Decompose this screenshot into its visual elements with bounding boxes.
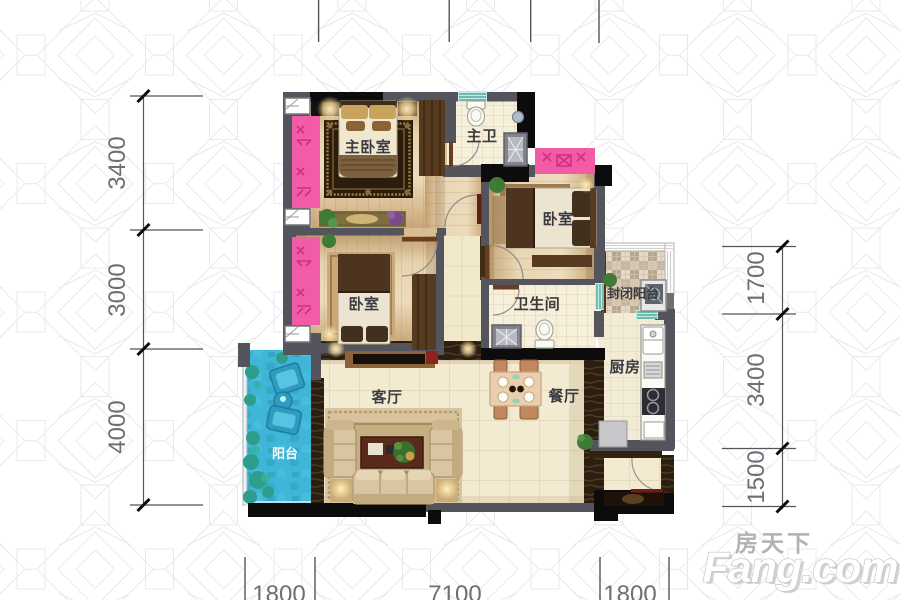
svg-text:客厅: 客厅 (370, 388, 402, 406)
svg-text:3000: 3000 (104, 263, 131, 316)
svg-text:1500: 1500 (743, 450, 770, 503)
svg-text:阳台: 阳台 (272, 446, 298, 461)
svg-text:1800: 1800 (603, 581, 656, 600)
svg-text:厨房: 厨房 (609, 358, 640, 376)
svg-text:Fang.com: Fang.com (702, 544, 897, 592)
svg-text:3400: 3400 (104, 136, 131, 189)
svg-text:封闭阳台: 封闭阳台 (607, 286, 659, 301)
svg-text:主卧室: 主卧室 (345, 138, 392, 156)
svg-text:卧室: 卧室 (542, 210, 573, 228)
svg-text:7100: 7100 (428, 581, 481, 600)
svg-text:1700: 1700 (743, 251, 770, 304)
svg-text:1800: 1800 (252, 581, 305, 600)
svg-text:卫生间: 卫生间 (514, 295, 561, 313)
svg-text:3400: 3400 (743, 353, 770, 406)
svg-text:卧室: 卧室 (348, 295, 379, 313)
svg-text:主卫: 主卫 (466, 127, 497, 145)
svg-text:餐厅: 餐厅 (548, 387, 579, 405)
svg-text:4000: 4000 (104, 400, 131, 453)
